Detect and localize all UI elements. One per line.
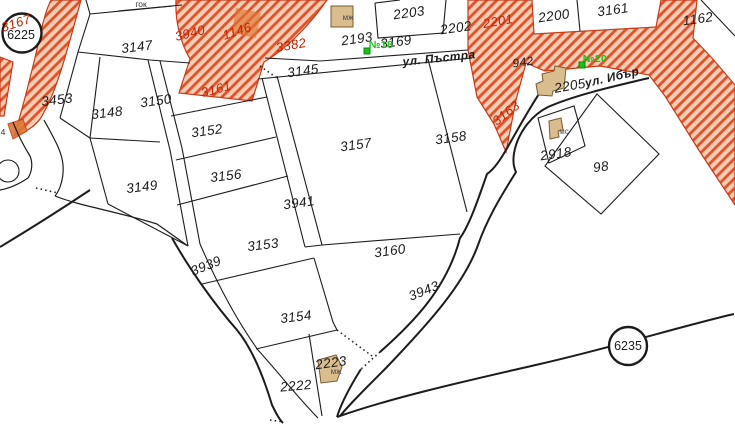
street-area-west-edge xyxy=(0,57,13,116)
road-ibar-southeast-edge xyxy=(340,78,649,416)
parcel-lines-middle xyxy=(171,76,337,418)
building-residential-2223 xyxy=(318,355,342,383)
road-3939-west-edge xyxy=(172,238,283,423)
street-hatch-layer xyxy=(0,0,735,205)
road-ibar-northwest-edge xyxy=(380,85,545,352)
cadastral-map: 3147345331483150315231563149315331542222… xyxy=(0,0,735,426)
map-canvas xyxy=(0,0,735,426)
building-residential-north xyxy=(331,6,353,27)
pond-outline xyxy=(0,160,19,182)
boundary-thick-southwest xyxy=(0,190,90,247)
road-edge-dotted-gap xyxy=(361,352,380,369)
building-ms-2918 xyxy=(549,118,563,139)
parcel-lines-east-diamonds xyxy=(538,94,659,214)
terrain-squiggles-west xyxy=(0,120,188,246)
survey-circle-6235 xyxy=(609,327,647,365)
road-south-boundary xyxy=(337,314,734,417)
survey-circle-6225 xyxy=(3,14,42,53)
orange-structure-west xyxy=(8,119,27,139)
street-area-east xyxy=(468,0,735,205)
parcel-lines-northwest xyxy=(60,0,200,246)
orange-structure-central xyxy=(232,8,261,38)
